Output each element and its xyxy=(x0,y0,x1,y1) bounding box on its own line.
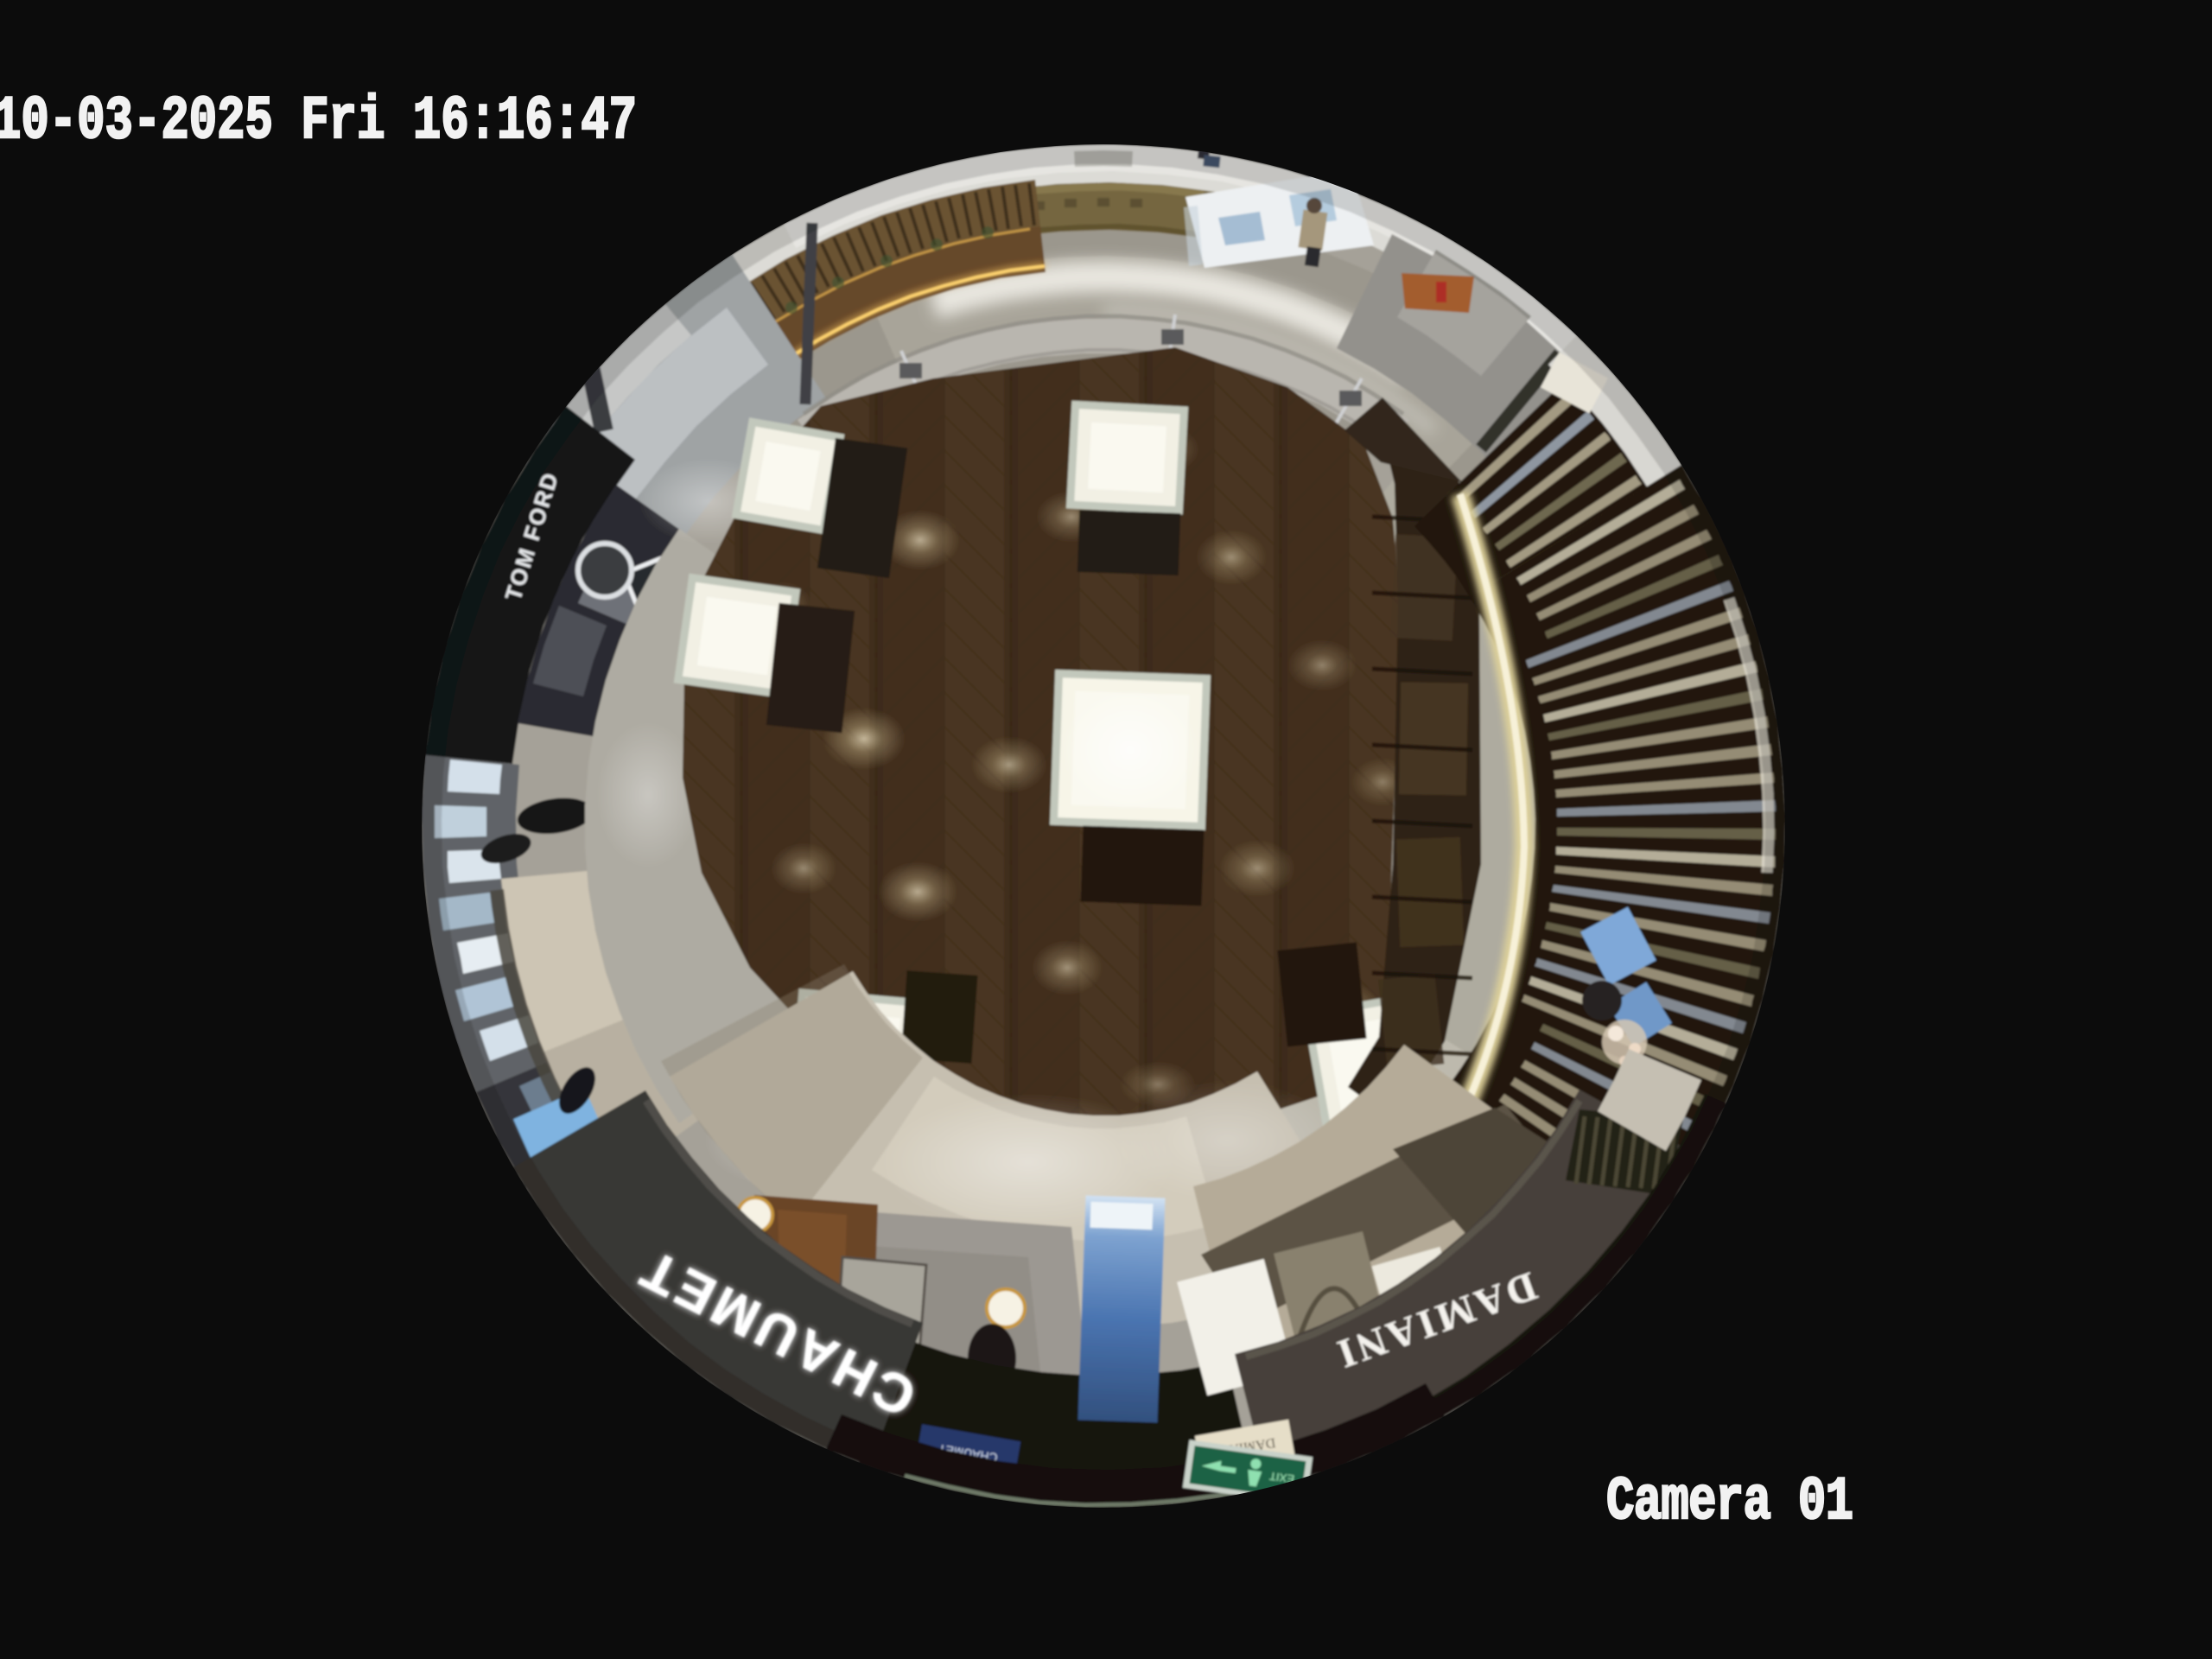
svg-text:10-03-2025 Fri 16:16:47: 10-03-2025 Fri 16:16:47 xyxy=(0,87,637,156)
svg-text:Camera 01: Camera 01 xyxy=(1606,1468,1853,1537)
